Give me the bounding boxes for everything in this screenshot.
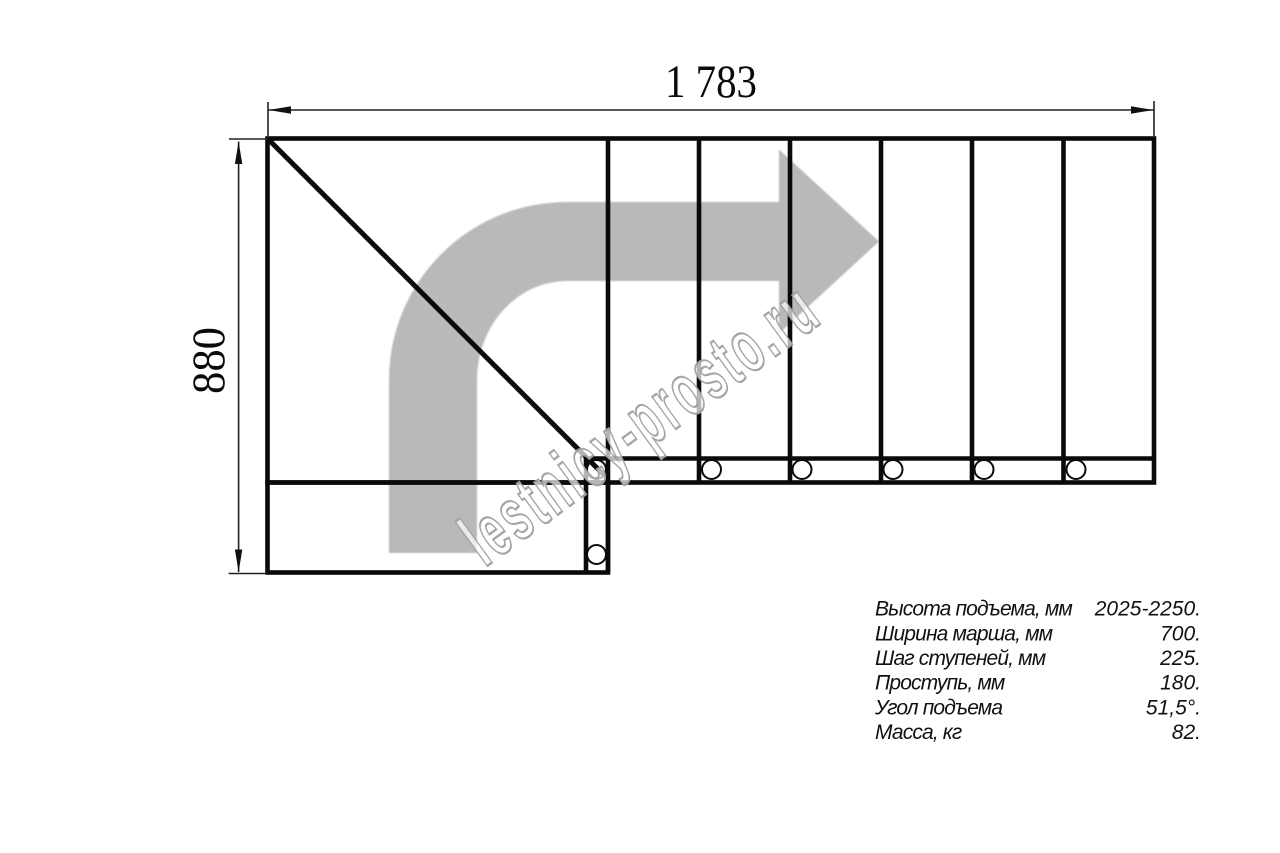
- svg-text:1 783: 1 783: [665, 55, 757, 107]
- svg-text:700.: 700.: [1160, 622, 1201, 645]
- svg-text:Масса, кг: Масса, кг: [875, 721, 962, 744]
- svg-text:880: 880: [182, 327, 234, 394]
- svg-text:2025-2250.: 2025-2250.: [1094, 598, 1201, 621]
- svg-text:225.: 225.: [1159, 647, 1201, 670]
- svg-text:82.: 82.: [1172, 721, 1201, 744]
- svg-text:Угол подъема: Угол подъема: [874, 696, 1002, 719]
- svg-text:51,5°.: 51,5°.: [1146, 696, 1201, 719]
- svg-text:Ширина марша, мм: Ширина марша, мм: [875, 622, 1053, 645]
- svg-text:Шаг ступеней, мм: Шаг ступеней, мм: [875, 647, 1046, 670]
- svg-text:180.: 180.: [1160, 672, 1201, 695]
- svg-text:lestnicy-prosto.ru: lestnicy-prosto.ru: [445, 266, 834, 581]
- svg-text:Высота подъема, мм: Высота подъема, мм: [875, 598, 1072, 621]
- svg-text:Проступь, мм: Проступь, мм: [875, 672, 1005, 695]
